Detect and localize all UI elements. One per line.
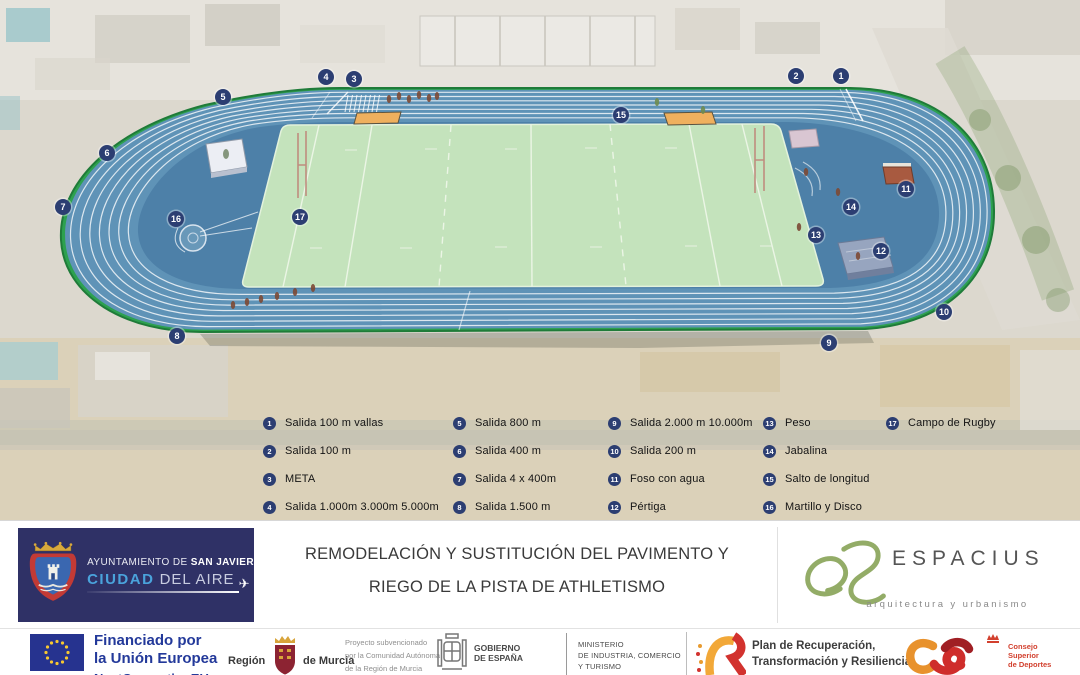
legend-label: Salto de longitud <box>785 473 870 485</box>
eu-flag-icon <box>30 634 84 671</box>
legend-label: Salida 100 m vallas <box>285 417 383 429</box>
espacius-logo: ESPACIUS arquitectura y urbanismo <box>790 525 1075 625</box>
san-javier-crest-icon <box>28 538 78 612</box>
athletics-track-poster: 1 2 3 4 5 6 7 8 9 10 11 12 13 14 15 16 1… <box>0 0 1080 675</box>
high-jump-mat-right <box>789 129 819 148</box>
legend-item: 17Campo de Rugby <box>886 415 996 431</box>
legend-num: 15 <box>763 473 776 486</box>
track-aerial-view: 1 2 3 4 5 6 7 8 9 10 11 12 13 14 15 16 1… <box>0 0 1080 520</box>
legend-item: 6Salida 400 m <box>453 443 556 459</box>
municipality-line1: AYUNTAMIENTO DE SAN JAVIER <box>87 557 254 568</box>
legend-num: 17 <box>886 417 899 430</box>
legend-label: Salida 400 m <box>475 445 541 457</box>
legend-num: 9 <box>608 417 621 430</box>
track-marker-11: 11 <box>898 181 914 197</box>
track-marker-12: 12 <box>873 243 889 259</box>
title-band: AYUNTAMIENTO DE SAN JAVIER CIUDAD DEL AI… <box>0 520 1080 629</box>
legend-label: Salida 800 m <box>475 417 541 429</box>
divider <box>686 632 687 675</box>
divider <box>566 633 567 675</box>
track-marker-2: 2 <box>788 68 804 84</box>
track-marker-14: 14 <box>843 199 859 215</box>
legend-item: 12Pértiga <box>608 499 753 515</box>
murcia-shield-icon <box>272 635 298 675</box>
legend-column-4: 13Peso 14Jabalina 15Salto de longitud 16… <box>763 415 870 515</box>
track-marker-10: 10 <box>936 304 952 320</box>
track-marker-6: 6 <box>99 145 115 161</box>
csd-text: Consejo Superior de Deportes <box>1008 642 1051 669</box>
project-title-line1: REMODELACIÓN Y SUSTITUCIÓN DEL PAVIMENTO… <box>262 538 772 571</box>
track-marker-4: 4 <box>318 69 334 85</box>
track-marker-5: 5 <box>215 89 231 105</box>
legend-item: 1Salida 100 m vallas <box>263 415 439 431</box>
vertical-divider <box>777 527 778 623</box>
espacius-swirl-icon <box>794 533 890 605</box>
legend-item: 2Salida 100 m <box>263 443 439 459</box>
municipality-line2: CIUDAD DEL AIRE✈ <box>87 571 254 588</box>
track-marker-1: 1 <box>833 68 849 84</box>
legend-column-2: 5Salida 800 m 6Salida 400 m 7Salida 4 x … <box>453 415 556 515</box>
track-marker-15: 15 <box>613 107 629 123</box>
legend-label: META <box>285 473 315 485</box>
track-marker-8: 8 <box>169 328 185 344</box>
legend-label: Campo de Rugby <box>908 417 996 429</box>
legend-label: Salida 1.500 m <box>475 501 550 513</box>
san-javier-logo: AYUNTAMIENTO DE SAN JAVIER CIUDAD DEL AI… <box>18 528 254 622</box>
legend: 1Salida 100 m vallas 2Salida 100 m 3META… <box>0 413 1080 518</box>
legend-column-3: 9Salida 2.000 m 10.000m 10Salida 200 m 1… <box>608 415 753 515</box>
espacius-tagline: arquitectura y urbanismo <box>845 599 1050 610</box>
sponsors-band: Financiado por la Unión Europea NextGene… <box>0 628 1080 675</box>
eu-funding-text: Financiado por la Unión Europea <box>94 632 217 668</box>
legend-item: 11Foso con agua <box>608 471 753 487</box>
legend-num: 1 <box>263 417 276 430</box>
legend-num: 7 <box>453 473 466 486</box>
track-marker-3: 3 <box>346 71 362 87</box>
murcia-region-label-left: Región <box>228 655 265 667</box>
legend-item: 13Peso <box>763 415 870 431</box>
track-marker-13: 13 <box>808 227 824 243</box>
legend-num: 6 <box>453 445 466 458</box>
legend-item: 10Salida 200 m <box>608 443 753 459</box>
track-marker-9: 9 <box>821 335 837 351</box>
legend-label: Salida 4 x 400m <box>475 473 556 485</box>
eu-nextgeneration-text: NextGenerationEU <box>94 671 209 675</box>
legend-label: Peso <box>785 417 811 429</box>
track-marker-17: 17 <box>292 209 308 225</box>
prtr-r-logo-icon <box>694 632 746 675</box>
high-jump-mat <box>206 139 247 178</box>
legend-num: 2 <box>263 445 276 458</box>
legend-label: Salida 100 m <box>285 445 351 457</box>
ministerio-text: MINISTERIO DE INDUSTRIA, COMERCIO Y TURI… <box>578 639 681 672</box>
subsidy-text: Proyecto subvencionado por la Comunidad … <box>345 636 440 675</box>
legend-num: 14 <box>763 445 776 458</box>
legend-item: 4Salida 1.000m 3.000m 5.000m <box>263 499 439 515</box>
legend-item: 9Salida 2.000 m 10.000m <box>608 415 753 431</box>
track-marker-7: 7 <box>55 199 71 215</box>
legend-label: Salida 2.000 m 10.000m <box>630 417 753 429</box>
legend-column-1: 1Salida 100 m vallas 2Salida 100 m 3META… <box>263 415 439 515</box>
legend-label: Salida 200 m <box>630 445 696 457</box>
legend-label: Jabalina <box>785 445 827 457</box>
project-title: REMODELACIÓN Y SUSTITUCIÓN DEL PAVIMENTO… <box>262 538 772 604</box>
legend-item: 7Salida 4 x 400m <box>453 471 556 487</box>
pole-vault-mat <box>838 237 894 280</box>
rugby-field <box>243 124 824 287</box>
legend-num: 5 <box>453 417 466 430</box>
legend-num: 10 <box>608 445 621 458</box>
legend-num: 4 <box>263 501 276 514</box>
legend-label: Foso con agua <box>630 473 705 485</box>
legend-item: 16Martillo y Disco <box>763 499 870 515</box>
legend-num: 13 <box>763 417 776 430</box>
legend-item: 15Salto de longitud <box>763 471 870 487</box>
airplane-icon: ✈ <box>239 576 251 592</box>
legend-num: 8 <box>453 501 466 514</box>
track-marker-16: 16 <box>168 211 184 227</box>
legend-item: 14Jabalina <box>763 443 870 459</box>
spain-coat-of-arms-icon <box>437 633 467 673</box>
long-jump-pit-left <box>354 112 401 124</box>
contrail-line <box>87 591 239 594</box>
long-jump-pit-right <box>664 112 716 125</box>
csd-logo-icon <box>903 634 1003 675</box>
legend-item: 3META <box>263 471 439 487</box>
legend-label: Pértiga <box>630 501 666 513</box>
legend-label: Martillo y Disco <box>785 501 862 513</box>
legend-num: 16 <box>763 501 776 514</box>
project-title-line2: RIEGO DE LA PISTA DE ATHLETISMO <box>262 571 772 604</box>
prtr-text: Plan de Recuperación, Transformación y R… <box>752 638 911 670</box>
legend-num: 11 <box>608 473 621 486</box>
legend-item: 8Salida 1.500 m <box>453 499 556 515</box>
legend-num: 12 <box>608 501 621 514</box>
legend-label: Salida 1.000m 3.000m 5.000m <box>285 501 439 513</box>
legend-item: 5Salida 800 m <box>453 415 556 431</box>
gobierno-espana-text: GOBIERNO DE ESPAÑA <box>474 643 523 663</box>
legend-num: 3 <box>263 473 276 486</box>
espacius-name: ESPACIUS <box>892 547 1045 571</box>
legend-column-5: 17Campo de Rugby <box>886 415 996 431</box>
